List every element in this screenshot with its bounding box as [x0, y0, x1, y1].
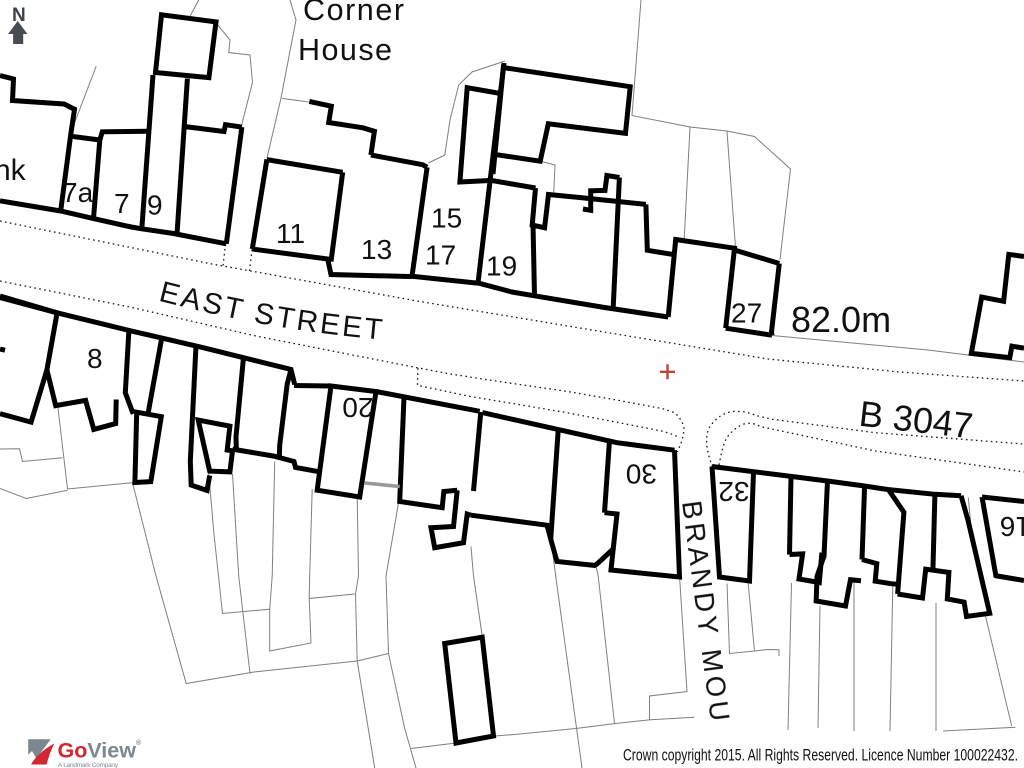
svg-text:27: 27 [731, 298, 762, 329]
svg-text:20: 20 [342, 392, 373, 423]
svg-text:16: 16 [1000, 511, 1024, 542]
svg-text:House: House [298, 33, 392, 67]
svg-text:Crown copyright 2015. All Righ: Crown copyright 2015. All Rights Reserve… [623, 747, 1018, 765]
svg-text:nk: nk [0, 154, 27, 187]
svg-text:15: 15 [431, 203, 462, 234]
svg-text:®: ® [136, 739, 142, 747]
svg-text:GoView: GoView [58, 739, 137, 763]
svg-text:17: 17 [425, 240, 456, 271]
svg-text:32: 32 [718, 476, 749, 507]
svg-text:7a: 7a [62, 177, 94, 208]
svg-text:9: 9 [147, 190, 163, 221]
svg-text:82.0m: 82.0m [791, 299, 891, 340]
svg-text:7: 7 [114, 188, 130, 219]
svg-text:30: 30 [626, 459, 657, 490]
svg-text:A Landmark Company: A Landmark Company [58, 762, 119, 768]
svg-text:19: 19 [486, 251, 517, 282]
svg-text:8: 8 [87, 343, 103, 374]
svg-text:13: 13 [361, 234, 392, 265]
svg-text:Corner: Corner [303, 0, 404, 27]
svg-text:11: 11 [276, 218, 305, 249]
